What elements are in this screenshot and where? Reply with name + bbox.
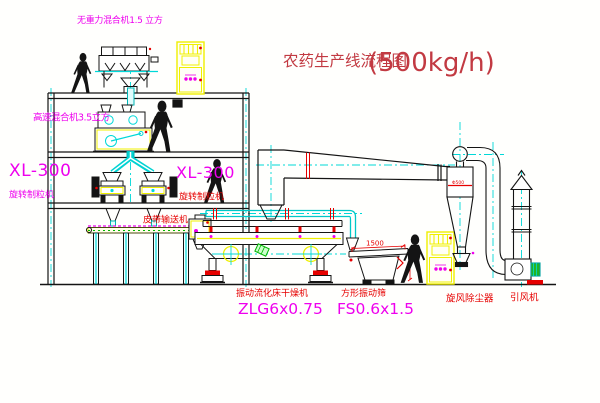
- flow-diagram-canvas: 无重力混合机1.5 立方 农药生产线流程图 (500kg/h) 高速混合机3.5…: [0, 0, 600, 403]
- label-screen-name: 方形振动筛: [341, 287, 386, 299]
- labels: 无重力混合机1.5 立方 农药生产线流程图 (500kg/h) 高速混合机3.5…: [9, 14, 539, 318]
- granulator-unit: [95, 173, 125, 204]
- belt-conveyor: [87, 226, 202, 284]
- label-dryer-model: ZLG6x0.75: [238, 300, 323, 318]
- worker-figure-roof: [71, 53, 90, 93]
- fluid-bed-dryer: [195, 221, 343, 283]
- label-granulator-mid-model: XL-300: [176, 163, 235, 182]
- label-granulator-left-name: 旋转制粒机: [9, 189, 54, 201]
- label-belt-conveyor: 皮带输送机: [143, 214, 188, 226]
- label-fan: 引风机: [510, 292, 539, 304]
- dim-cyclone: Φ500: [452, 180, 464, 186]
- page-title-capacity: (500kg/h): [368, 48, 495, 78]
- label-dryer-name: 振动流化床干燥机: [236, 287, 308, 299]
- label-granulator-left-model: XL-300: [9, 161, 71, 181]
- granulator-unit: [140, 173, 170, 204]
- worker-figure-ground: [401, 234, 425, 283]
- process-flow-drawing: 无重力混合机1.5 立方 农药生产线流程图 (500kg/h) 高速混合机3.5…: [0, 0, 600, 403]
- label-granulator-mid-name: 旋转制粒机: [179, 191, 224, 203]
- control-cabinet-top: [177, 42, 204, 94]
- worker-figure-floor2: [147, 101, 172, 152]
- dim-screen-length: 1500: [366, 240, 384, 248]
- label-gravity-mixer: 无重力混合机1.5 立方: [77, 14, 163, 26]
- rotary-granulators: [92, 173, 177, 204]
- exhaust-duct: [258, 150, 450, 219]
- gravity-free-mixer: [95, 47, 158, 105]
- label-high-speed-mixer: 高速混合机3.5立方: [33, 112, 110, 124]
- control-cabinet-bottom: [427, 232, 454, 284]
- label-cyclone: 旋风除尘器: [446, 293, 494, 305]
- induced-draft-fan: [505, 259, 543, 285]
- label-screen-model: FS0.6x1.5: [337, 300, 414, 318]
- y-chute: [112, 152, 153, 173]
